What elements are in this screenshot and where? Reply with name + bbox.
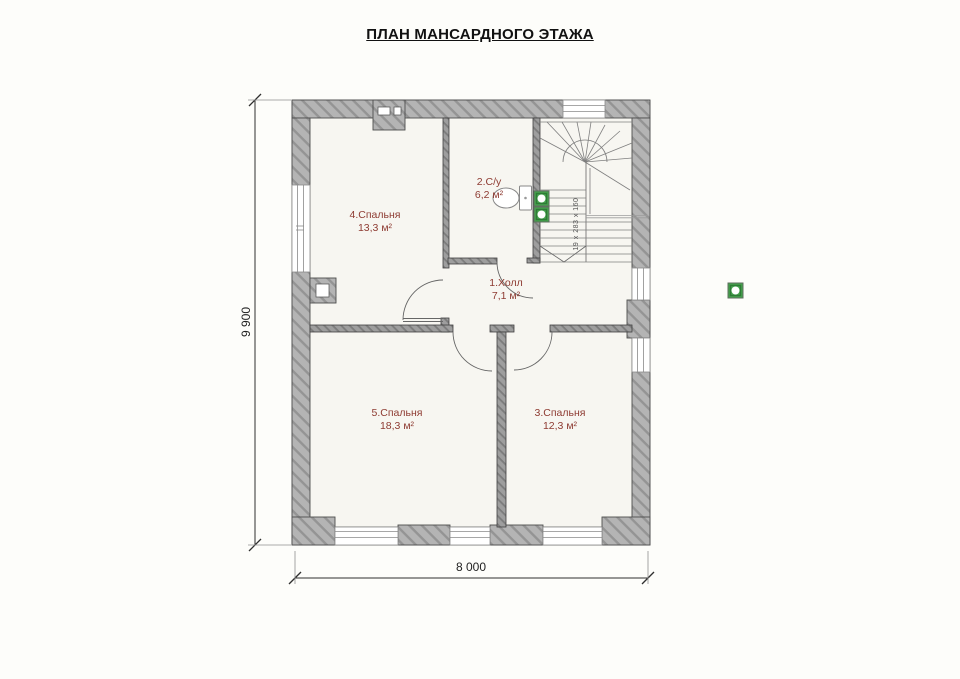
vent-icon [534, 207, 549, 222]
room-area: 18,3 м² [372, 420, 423, 433]
floor-base [292, 100, 650, 545]
room-label-bedroom3: 3.Спальня 12,3 м² [535, 407, 586, 433]
page-title: ПЛАН МАНСАРДНОГО ЭТАЖА [0, 26, 960, 43]
room-label-bathroom: 2.С/у 6,2 м² [475, 176, 503, 202]
page-title-text: ПЛАН МАНСАРДНОГО ЭТАЖА [366, 26, 594, 43]
floor-plan-drawing [0, 0, 960, 679]
room-name: 4.Спальня [350, 209, 401, 222]
vent-icon [728, 283, 743, 298]
dimension-height: 9 900 [239, 292, 253, 352]
floor-plan-page: ПЛАН МАНСАРДНОГО ЭТАЖА 4.Спальня 13,3 м²… [0, 0, 960, 679]
dimension-width: 8 000 [431, 560, 511, 574]
room-area: 12,3 м² [535, 420, 586, 433]
room-label-bedroom4: 4.Спальня 13,3 м² [350, 209, 401, 235]
room-area: 6,2 м² [475, 189, 503, 202]
room-name: 5.Спальня [372, 407, 423, 420]
room-label-hall: 1.Холл 7,1 м² [489, 277, 523, 303]
room-name: 3.Спальня [535, 407, 586, 420]
room-name: 2.С/у [475, 176, 503, 189]
stairs-step-label: 19 x 283 x 160 [573, 184, 583, 264]
room-label-bedroom5: 5.Спальня 18,3 м² [372, 407, 423, 433]
vent-icon [534, 191, 549, 206]
room-area: 13,3 м² [350, 222, 401, 235]
room-name: 1.Холл [489, 277, 523, 290]
room-area: 7,1 м² [489, 290, 523, 303]
